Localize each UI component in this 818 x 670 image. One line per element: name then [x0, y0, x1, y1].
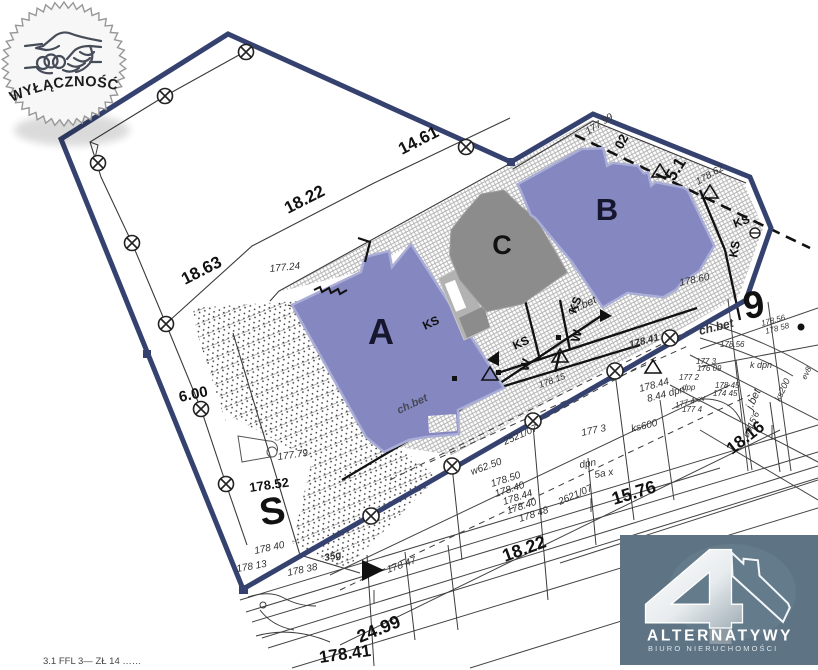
svg-text:178.56: 178.56 [720, 340, 745, 349]
svg-text:KS: KS [726, 240, 743, 259]
svg-text:3.1 FFL 3— ZŁ 14 ……: 3.1 FFL 3— ZŁ 14 …… [43, 656, 141, 667]
svg-text:BIURO NIERUCHOMOŚCI: BIURO NIERUCHOMOŚCI [648, 644, 778, 653]
svg-text:174 45: 174 45 [713, 389, 738, 398]
svg-text:A: A [368, 311, 394, 352]
svg-text:dpp: dpp [682, 383, 696, 392]
svg-text:B: B [596, 192, 618, 227]
svg-text:176 09: 176 09 [697, 364, 722, 373]
svg-text:C: C [492, 230, 512, 260]
svg-text:ALTERNATYWY: ALTERNATYWY [647, 628, 793, 645]
svg-text:177 2: 177 2 [679, 373, 700, 382]
svg-text:k dpn: k dpn [750, 360, 772, 370]
